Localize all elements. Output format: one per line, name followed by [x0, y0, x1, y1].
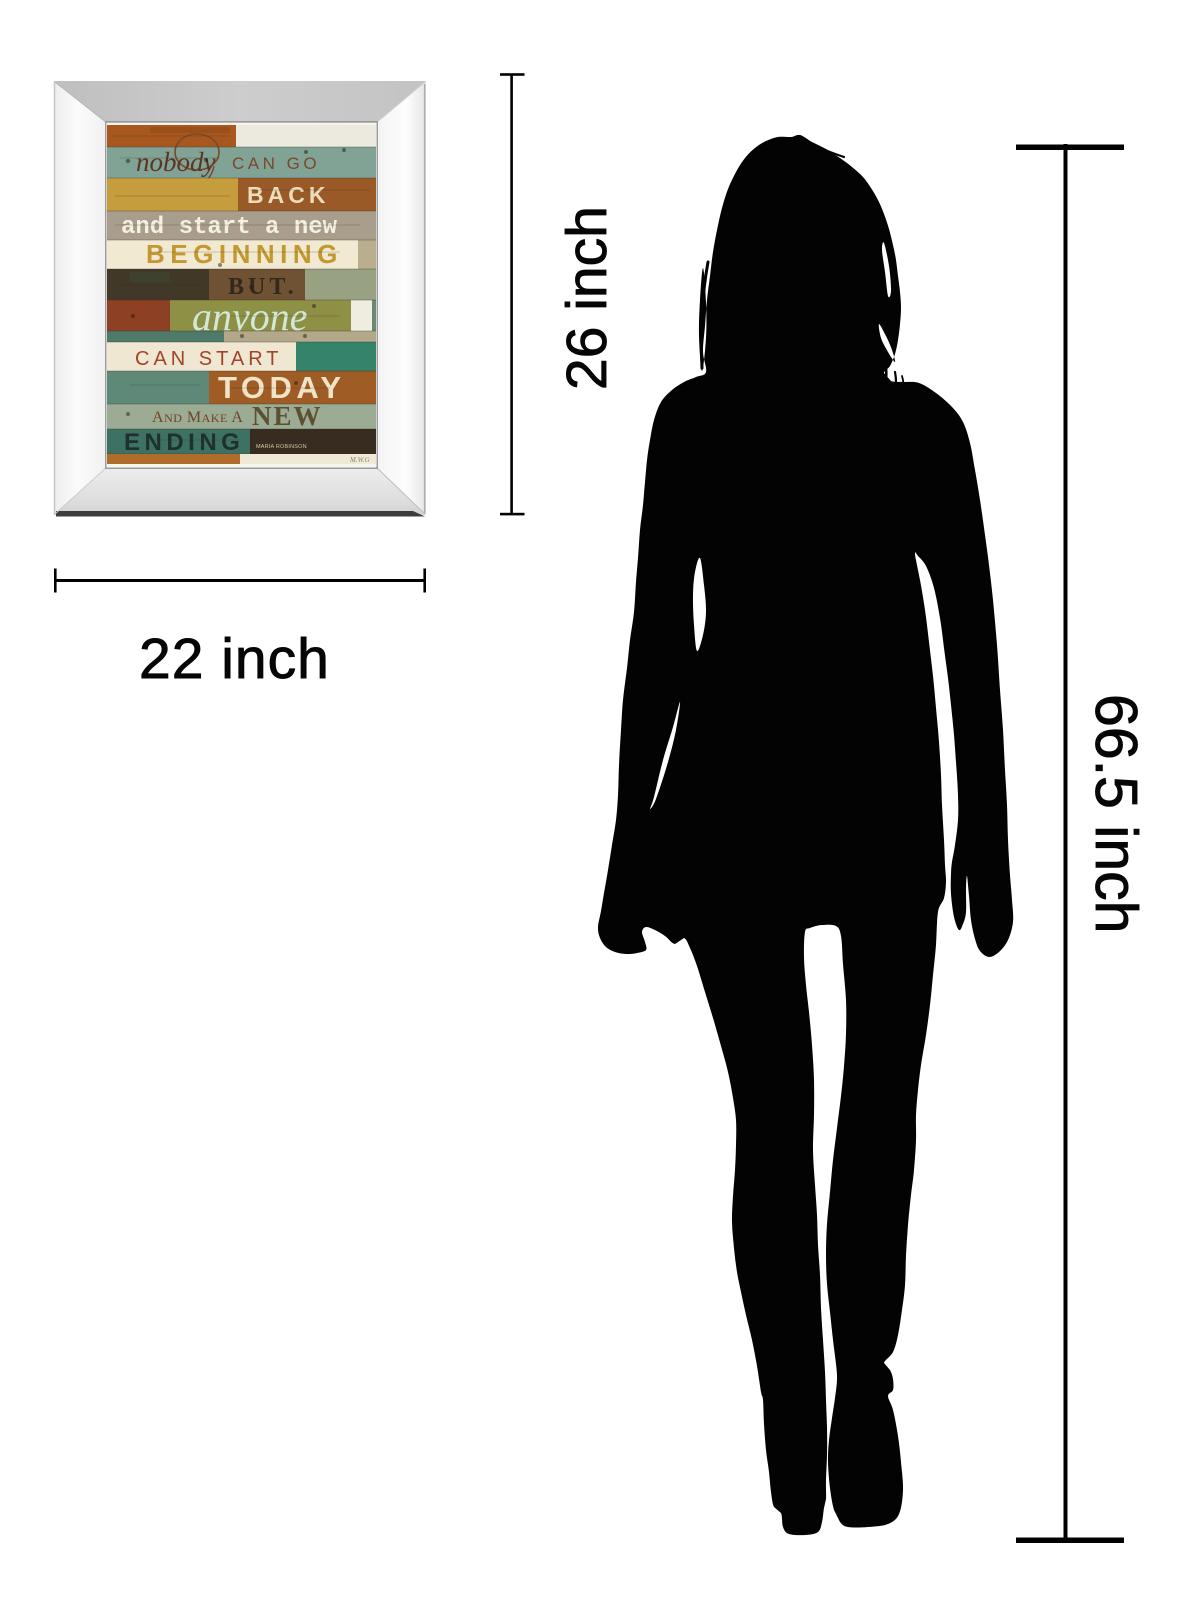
svg-text:BEGINNING: BEGINNING	[146, 239, 343, 269]
svg-text:nobody: nobody	[136, 147, 216, 177]
svg-text:and start a new: and start a new	[121, 214, 338, 241]
svg-text:26 inch: 26 inch	[555, 206, 619, 390]
svg-text:ENDING: ENDING	[124, 429, 244, 456]
svg-text:CAN GO: CAN GO	[232, 154, 320, 173]
svg-text:AND MAKE A: AND MAKE A	[152, 409, 243, 426]
svg-text:NEW: NEW	[252, 401, 323, 431]
svg-text:BACK: BACK	[247, 182, 329, 208]
svg-text:22 inch: 22 inch	[139, 627, 330, 691]
svg-text:CAN START: CAN START	[135, 348, 283, 370]
svg-text:M.W.G: M.W.G	[349, 456, 370, 464]
svg-text:66.5 inch: 66.5 inch	[1083, 694, 1149, 933]
